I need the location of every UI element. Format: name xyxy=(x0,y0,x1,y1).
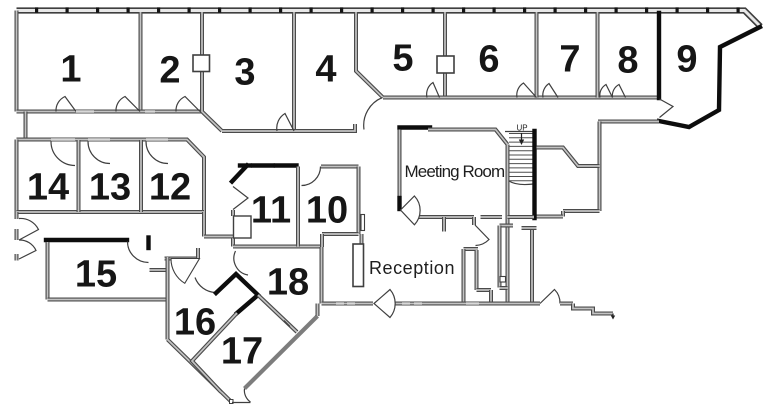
svg-text:15: 15 xyxy=(75,254,117,296)
svg-text:14: 14 xyxy=(27,167,69,209)
svg-text:9: 9 xyxy=(676,39,697,81)
svg-text:5: 5 xyxy=(392,38,413,80)
svg-text:1: 1 xyxy=(60,49,81,91)
svg-text:13: 13 xyxy=(89,167,131,209)
svg-text:10: 10 xyxy=(306,190,348,232)
svg-text:18: 18 xyxy=(267,262,309,304)
svg-text:7: 7 xyxy=(559,39,580,81)
svg-text:12: 12 xyxy=(149,167,191,209)
svg-text:2: 2 xyxy=(159,50,180,92)
svg-text:Meeting Room: Meeting Room xyxy=(405,162,505,181)
svg-text:17: 17 xyxy=(221,331,263,373)
svg-text:16: 16 xyxy=(174,302,216,344)
svg-text:11: 11 xyxy=(251,190,291,232)
svg-text:Reception: Reception xyxy=(369,258,455,278)
svg-text:8: 8 xyxy=(617,40,638,82)
svg-text:UP: UP xyxy=(516,124,527,133)
svg-text:4: 4 xyxy=(315,49,336,91)
svg-text:6: 6 xyxy=(478,39,499,81)
svg-text:3: 3 xyxy=(234,52,255,94)
